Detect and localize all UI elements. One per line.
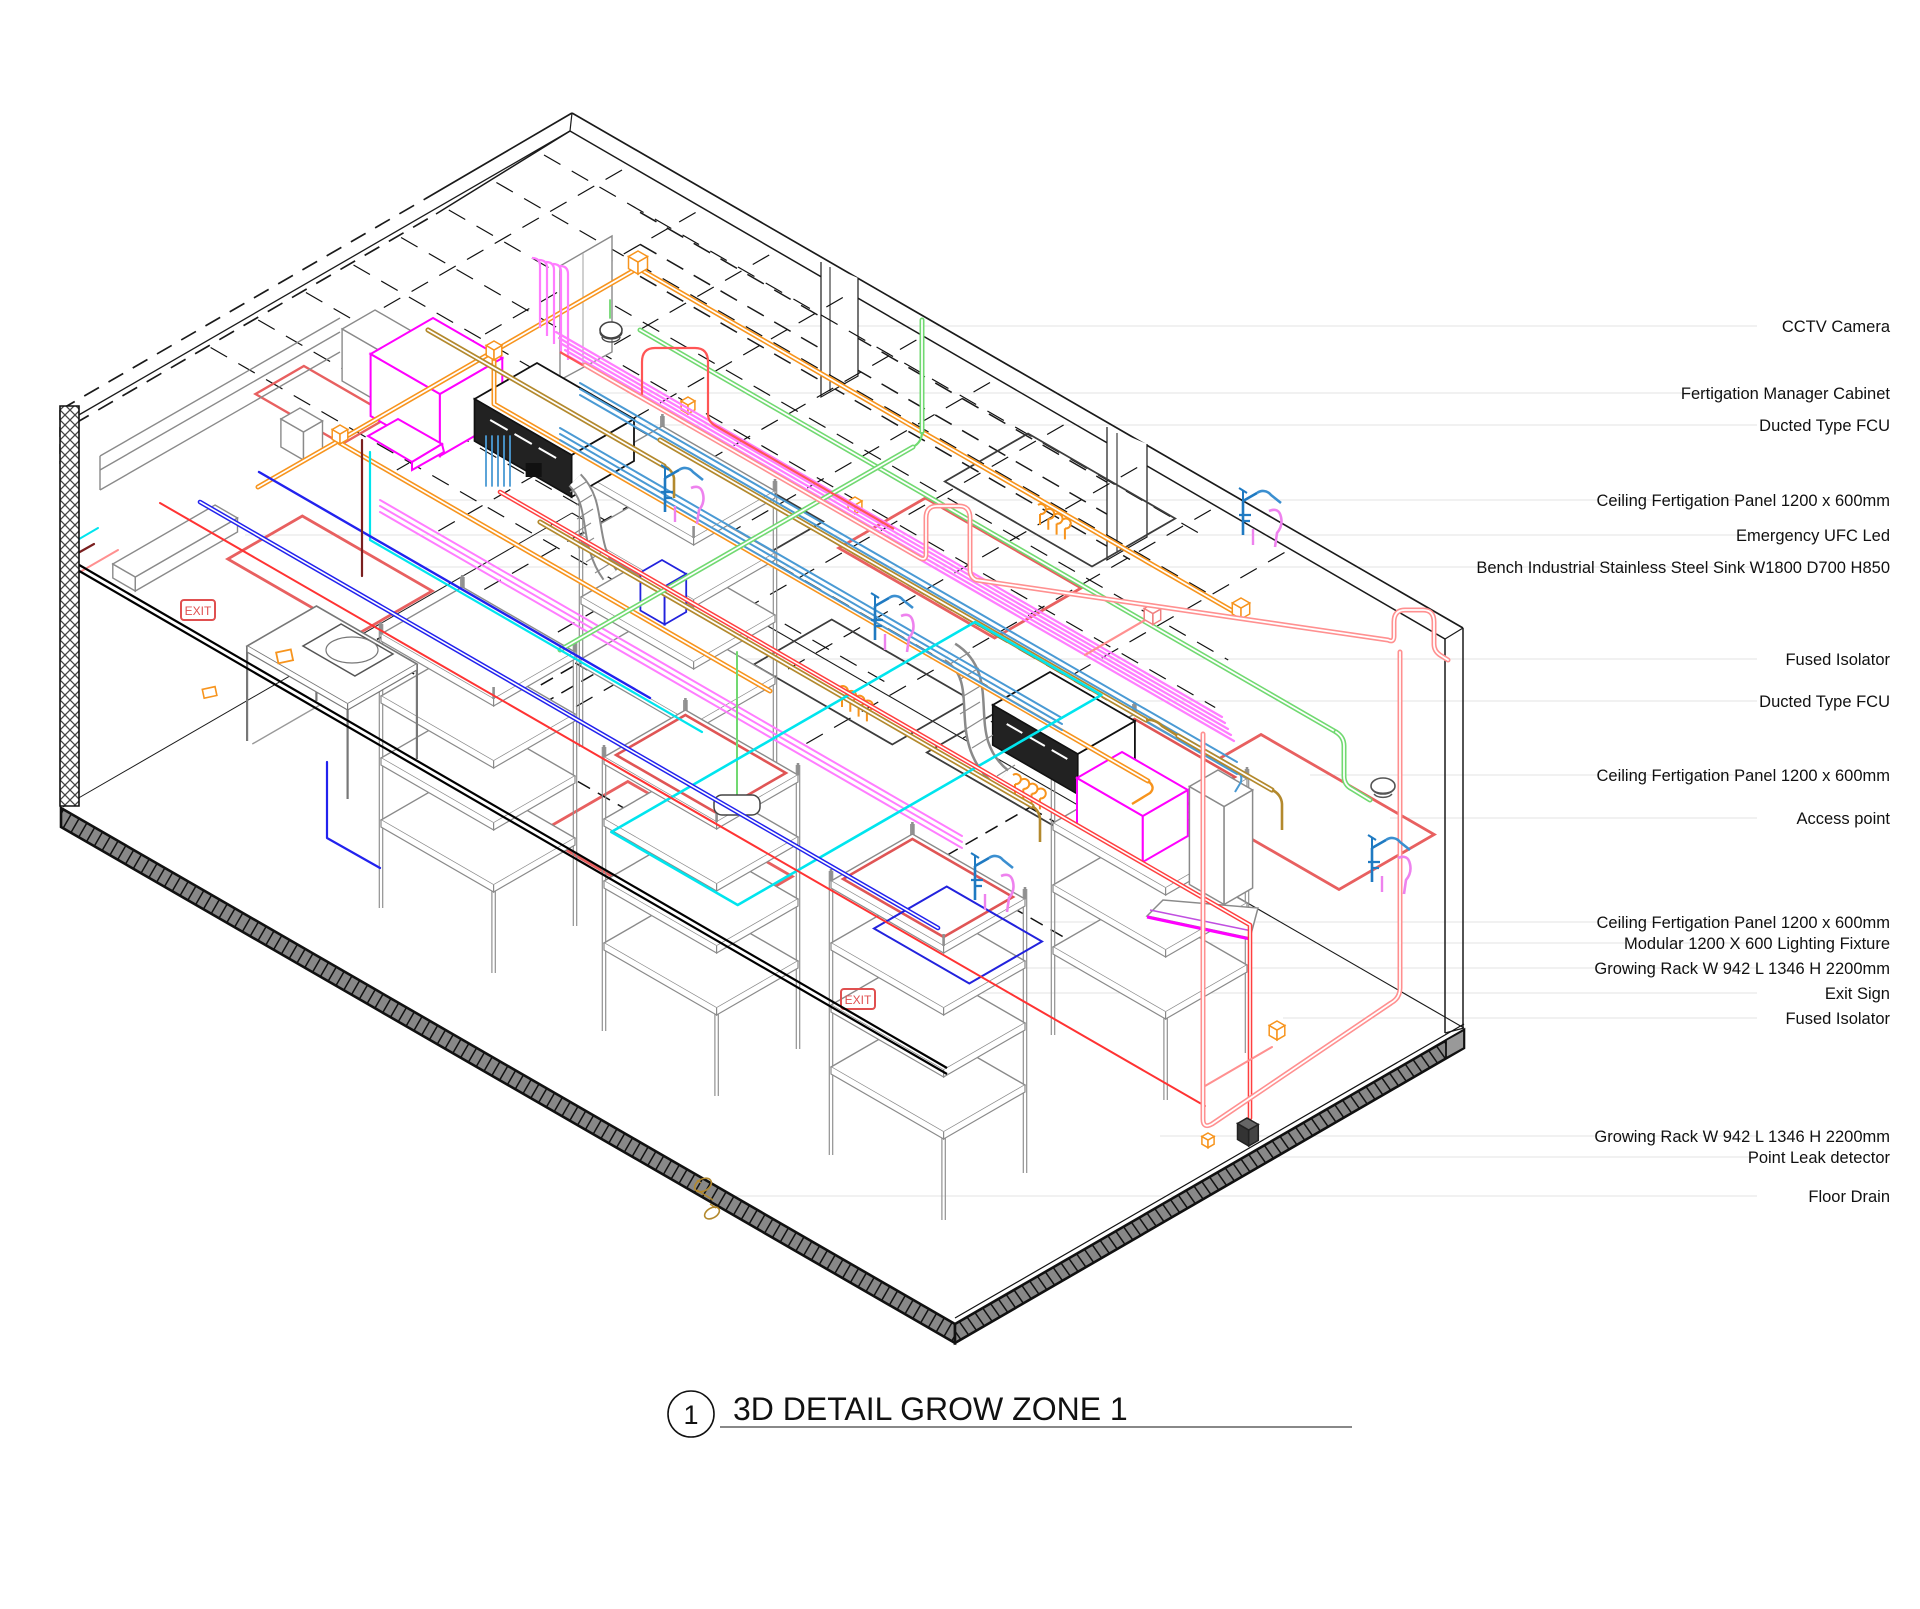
svg-text:Floor Drain: Floor Drain <box>1808 1188 1890 1206</box>
svg-text:Bench Industrial Stainless Ste: Bench Industrial Stainless Steel Sink W1… <box>1476 559 1890 577</box>
svg-text:Ceiling Fertigation Panel 1200: Ceiling Fertigation Panel 1200 x 600mm <box>1597 767 1891 785</box>
svg-text:Fused Isolator: Fused Isolator <box>1785 651 1890 669</box>
svg-text:Fused Isolator: Fused Isolator <box>1785 1010 1890 1028</box>
svg-text:Exit Sign: Exit Sign <box>1825 985 1890 1003</box>
svg-text:Access point: Access point <box>1796 810 1890 828</box>
svg-text:Ducted Type FCU: Ducted Type FCU <box>1759 693 1890 711</box>
svg-text:Emergency UFC Led: Emergency UFC Led <box>1736 527 1890 545</box>
svg-text:Ceiling Fertigation Panel 1200: Ceiling Fertigation Panel 1200 x 600mm <box>1597 492 1891 510</box>
svg-text:CCTV Camera: CCTV Camera <box>1782 318 1891 336</box>
svg-text:Modular 1200 X 600 Lighting Fi: Modular 1200 X 600 Lighting Fixture <box>1624 935 1890 953</box>
svg-text:EXIT: EXIT <box>845 993 872 1007</box>
svg-text:EXIT: EXIT <box>185 604 212 618</box>
svg-text:Point Leak detector: Point Leak detector <box>1748 1149 1891 1167</box>
svg-text:Growing Rack W 942 L 1346 H 22: Growing Rack W 942 L 1346 H 2200mm <box>1594 1128 1890 1146</box>
svg-text:Ducted Type FCU: Ducted Type FCU <box>1759 417 1890 435</box>
svg-text:Growing Rack W 942 L 1346 H 22: Growing Rack W 942 L 1346 H 2200mm <box>1594 960 1890 978</box>
svg-text:Fertigation Manager Cabinet: Fertigation Manager Cabinet <box>1681 385 1891 403</box>
svg-text:Ceiling Fertigation Panel 1200: Ceiling Fertigation Panel 1200 x 600mm <box>1597 914 1891 932</box>
svg-text:3D DETAIL GROW ZONE 1: 3D DETAIL GROW ZONE 1 <box>733 1391 1128 1427</box>
svg-text:1: 1 <box>683 1400 698 1430</box>
